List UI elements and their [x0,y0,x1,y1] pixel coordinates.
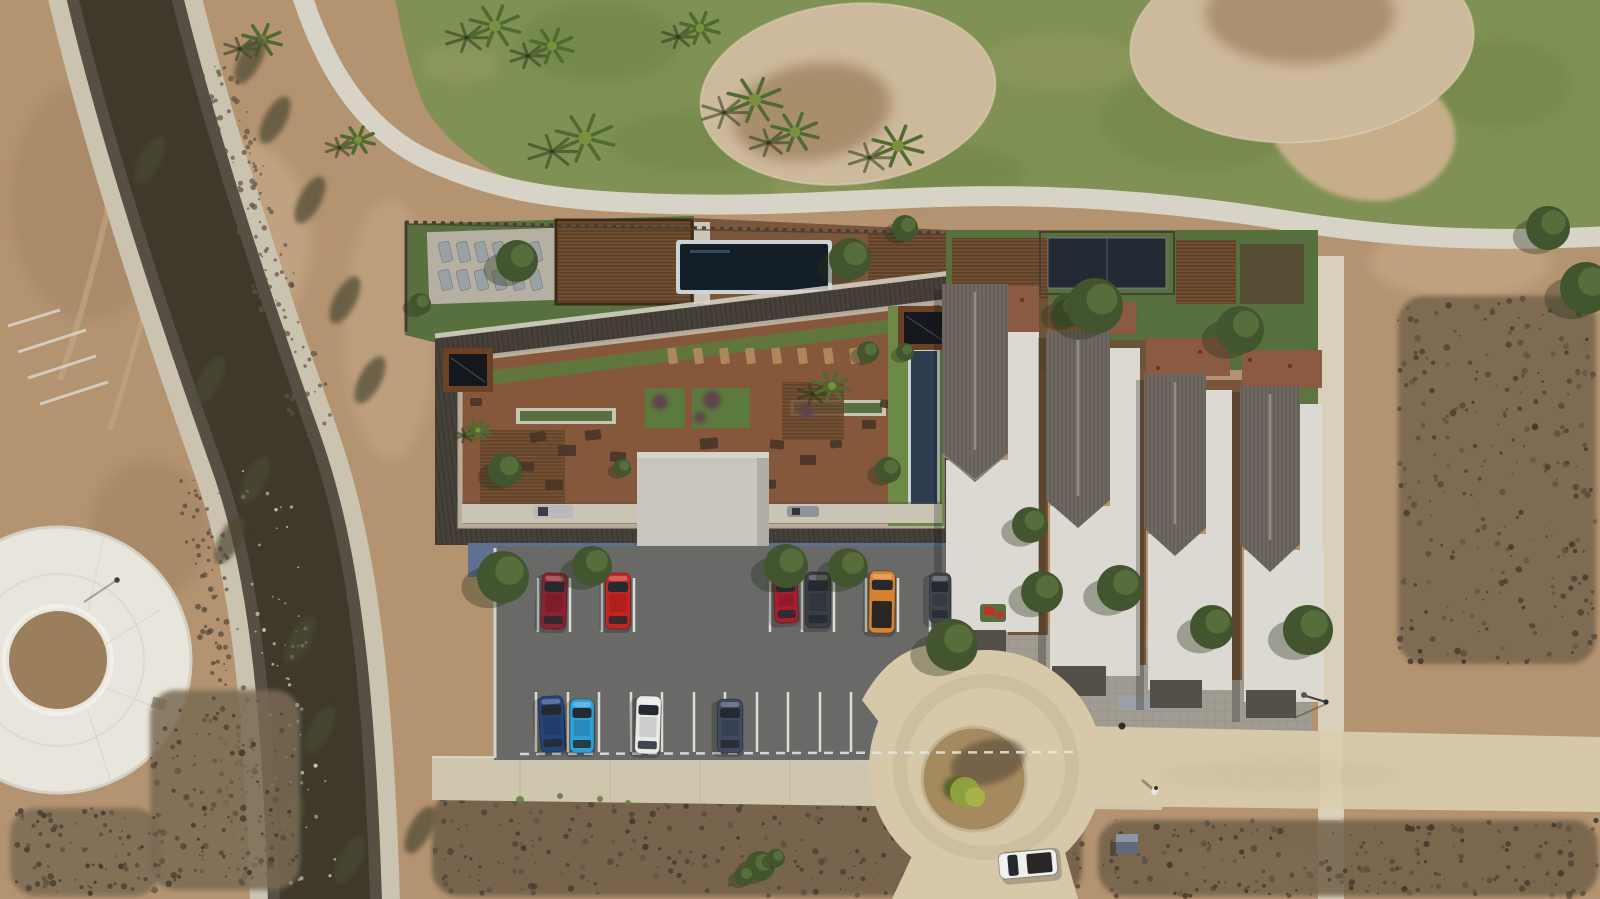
car-hood-shine [639,699,658,705]
scrub-dot [1415,357,1417,359]
scrub-dot [1542,314,1544,316]
scrub-dot [103,823,108,828]
tree-highlight [586,550,608,572]
scrub-dot [703,863,709,869]
bank-scrub-dot [303,420,307,424]
scrub-dot [1535,853,1541,859]
scrub-dot [1073,853,1075,855]
bank-scrub-dot [249,152,251,154]
scrub-dot [498,823,501,826]
scrub-dot [82,847,87,852]
scrub-dot [118,863,124,869]
scrub-dot [1510,555,1512,557]
scrub-dot [20,814,24,818]
scrub-dot [1444,492,1446,494]
plaza-lamp-post [114,577,120,583]
scrub-dot [1326,866,1332,872]
scrub-dot [1583,443,1587,447]
scrub-dot [1262,884,1266,888]
scrub-dot [719,835,721,837]
scrub-dot [1403,510,1410,517]
scrub-dot [1458,854,1464,860]
scrub-dot [1556,822,1563,829]
scrub-dot [47,812,52,817]
palm-crown [749,94,761,106]
scrub-dot [1451,826,1457,832]
scrub-dot [36,820,39,823]
scrub-dot [735,820,737,822]
tree-highlight [1113,570,1138,595]
bank-scrub-dot [259,173,262,176]
scrub-dot [193,788,196,791]
bank-scrub-dot [237,228,242,233]
scrub-dot [1410,619,1413,622]
car-rear-glass [777,610,795,619]
scrub-dot [469,876,471,878]
scrub-dot [1568,860,1575,867]
scrub-dot [1578,422,1584,428]
scrub-dot [1133,880,1138,885]
scrub-dot [568,885,575,892]
bank-scrub-dot [275,300,277,302]
green-sprig [557,793,563,799]
scrub-dot [101,811,106,816]
scrub-dot [1471,401,1474,404]
scrub-dot [1403,886,1407,890]
scrub-dot [224,724,230,730]
bank-scrub-dot [252,289,258,295]
scrub-dot [1476,528,1480,532]
scrub-dot [1499,452,1502,455]
car-windshield [541,705,561,716]
scrub-dot [151,890,153,892]
scrub-dot [1400,627,1403,630]
solar-panel-west [443,348,493,392]
scrub-dot [1501,571,1504,574]
scrub-dot [1117,876,1120,879]
scrub-dot [269,845,274,850]
scrub-dot [1537,372,1539,374]
water-sparkle [314,815,318,819]
road-wear [1160,759,1400,791]
bank-scrub-dot [192,515,196,519]
scrub-dot [36,861,42,867]
car-roof [722,720,739,736]
scrub-dot [851,876,854,879]
scrub-dot [69,842,72,845]
townhouse-4 [1240,350,1324,718]
scrub-dot [15,880,18,883]
scrub-dot [171,872,178,879]
scrub-dot [857,816,859,818]
bank-scrub-dot [259,221,261,223]
scrub-dot [1153,824,1159,830]
scrub-dot [855,893,860,898]
scrub-dot [1506,408,1508,410]
bank-scrub-dot [222,67,225,70]
tree-highlight [773,851,783,861]
scrub-dot [1459,859,1463,863]
scrub-dot [1399,483,1404,488]
scrub-dot [1460,838,1464,842]
scrub-dot [1464,469,1468,473]
scrub-dot [1445,415,1449,419]
bank-scrub-dot [243,135,248,140]
scrub-dot [1590,371,1596,377]
scrub-dot [736,806,742,812]
scrub-dot [199,854,201,856]
scrub-dot [1283,826,1285,828]
scrub-dot [227,816,230,819]
scrub-dot [1418,649,1423,654]
bank-scrub-dot [253,165,257,169]
scrub-dot [1513,376,1518,381]
scrub-dot [1415,436,1420,441]
scrub-dot [478,865,481,868]
terrace-furniture-dot [1156,366,1160,370]
car-hood-shine [541,699,560,705]
bank-scrub-dot [235,80,239,84]
scrub-dot [154,762,157,765]
scrub-dot [154,780,160,786]
car-rear-glass [932,610,948,618]
aerial-render-canvas [0,0,1600,899]
scrub-dot [1405,825,1412,832]
scrub-dot [124,817,126,819]
tree-highlight [1205,609,1229,633]
scrub-dot [1250,819,1255,824]
scrub-dot [793,859,797,863]
bank-scrub-dot [221,147,225,151]
scrub-dot [1411,501,1418,508]
playground-item [980,604,1006,622]
scrub-dot [629,818,636,825]
scrub-dot [840,888,842,890]
car-hood-shine [872,574,892,579]
scrub-dot [676,873,681,878]
bank-scrub-dot [241,211,244,214]
scrub-dot [267,860,272,865]
bank-scrub-dot [199,82,203,86]
scrub-dot [137,876,140,879]
bank-scrub-dot [268,285,272,289]
scrub-dot [1582,550,1585,553]
scrub-dot [203,825,206,828]
scrub-dot [1584,447,1588,451]
scrub-dot [219,850,224,855]
scrub-dot [1251,845,1258,852]
scrub-dot [79,885,83,889]
car-roof [610,594,627,612]
scrub-dot [563,834,568,839]
scrub-dot [1571,576,1577,582]
scrub-dot [60,847,65,852]
scrub-dot [559,871,563,875]
scrub-dot [1444,344,1451,351]
scrub-dot [211,808,214,811]
scrub-dot [1523,445,1525,447]
scrub-dot [812,848,818,854]
car [923,573,952,627]
bank-scrub-dot [188,492,191,495]
scrub-dot [582,838,588,844]
scrub-dot [1523,557,1529,563]
scrub-dot [629,812,634,817]
bank-scrub-dot [205,111,208,114]
scrub-dot [1533,631,1537,635]
scrub-dot [1408,316,1414,322]
scrub-dot [644,836,648,840]
tree-highlight [1087,284,1118,315]
bank-scrub-dot [225,555,230,560]
scrub-dot [1524,426,1530,432]
scrub-dot [1409,870,1413,874]
scrub-dot [58,833,63,838]
bank-scrub-dot [258,295,262,299]
scrub-dot [1482,621,1487,626]
scrub-dot [1460,539,1466,545]
water-sparkle [272,596,274,598]
bank-scrub-dot [251,284,255,288]
palm-crown [828,382,836,390]
scrub-dot [772,815,777,820]
scrub-dot [26,843,31,848]
scrub-dot [1255,828,1259,832]
scrub-dot [1505,841,1510,846]
scrub-dot [1351,865,1353,867]
water-sparkle [298,615,300,617]
grass-dry-patch [980,34,1140,90]
scrub-dot [1424,610,1428,614]
bank-scrub-dot [248,140,253,145]
bank-scrub-dot [207,546,210,549]
scrub-dot [1545,535,1548,538]
scrub-dot [1434,872,1438,876]
scrub-dot [137,847,141,851]
scrub-dot [884,891,888,895]
scrub-dot [1397,319,1399,321]
scrub-dot [667,826,673,832]
bank-scrub-dot [180,511,184,515]
scrub-dot [1575,370,1580,375]
scrub-dot [1453,329,1456,332]
deck-furniture-item [558,445,576,456]
scrub-dot [1525,353,1531,359]
scrub-dot [274,750,277,753]
scrub-dot [1406,307,1409,310]
bank-scrub-dot [194,493,198,497]
scrub-dot [1501,845,1505,849]
water-sparkle [284,602,286,604]
bank-scrub-dot [193,479,195,481]
scrub-dot [519,841,522,844]
scrub-dot [1440,544,1442,546]
scrub-dot [465,823,468,826]
scrub-dot [245,851,250,856]
scrub-dot [497,861,500,864]
aerial-site-photo [0,0,1600,899]
bank-scrub-dot [218,631,224,637]
scrub-dot [240,815,247,822]
purple-shrub [799,405,813,419]
bank-scrub-dot [286,408,291,413]
scrub-dot [639,855,645,861]
scrub-dot [1414,583,1417,586]
scrub-dot [1240,828,1244,832]
scrub-dot [1461,659,1466,664]
grass-mottle [520,2,680,82]
scrub-dot [1389,859,1394,864]
scrub-dot [568,828,572,832]
scrub-dot [1544,841,1547,844]
water-sparkle [266,492,270,496]
scrub-dot [172,789,176,793]
scrub-dot [534,862,536,864]
bank-scrub-dot [201,607,207,613]
scrub-dot [1547,652,1552,657]
lamp-pole [1323,699,1328,704]
scrub-dot [530,890,535,895]
scrub-dot [238,740,240,742]
scrub-dot [1433,453,1436,456]
scrub-dot [1481,524,1487,530]
scrub-dot [1414,319,1419,324]
bank-scrub-dot [307,358,311,362]
scrub-dot [1585,338,1588,341]
scrub-dot [1519,296,1525,302]
scrub-dot [1425,551,1431,557]
scrub-dot [131,887,134,890]
scrub-dot [532,844,536,848]
scrub-dot [1270,835,1272,837]
scrub-dot [239,749,246,756]
scrub-dot [275,788,279,792]
scrub-dot [1343,868,1348,873]
scrub-dot [1380,841,1383,844]
scrub-dot [736,836,740,840]
scrub-dot [172,757,175,760]
scrub-dot [1521,368,1527,374]
scrub-dot [208,733,210,735]
bank-scrub-dot [291,338,294,341]
scrub-dot [631,848,633,850]
scrub-dot [1559,336,1564,341]
scrub-dot [1556,461,1559,464]
scrub-dot [1442,615,1447,620]
flat-roof-strip [1110,348,1140,510]
scrub-dot [1262,870,1266,874]
scrub-dot [1557,555,1560,558]
bank-scrub-dot [247,207,249,209]
scrub-dot [668,868,674,874]
bank-scrub-dot [220,167,222,169]
scrub-dot [1589,488,1593,492]
scrub-dot [1473,444,1477,448]
scrub-dot [861,858,866,863]
scrub-dot [21,818,24,821]
bank-scrub-dot [198,496,202,500]
play-red-piece [983,606,995,615]
scrub-dot [1571,889,1576,894]
bank-scrub-dot [305,391,310,396]
scrub-dot [538,810,543,815]
scrub-dot [1326,860,1328,862]
scrub-dot [1271,827,1277,833]
bank-scrub-dot [213,116,218,121]
scrub-dot [576,805,581,810]
purple-shrub [703,391,721,409]
bank-scrub-dot [250,184,256,190]
scrub-dot [1233,859,1237,863]
scrub-dot [816,806,819,809]
water-sparkle [305,826,307,828]
scrub-dot [1076,884,1081,889]
scrub-dot [1591,377,1593,379]
scrub-dot [1506,865,1511,870]
tree-highlight [741,868,752,879]
water-sparkle [271,663,274,666]
scrub-dot [160,829,167,836]
scrub-dot [1474,304,1480,310]
scrub-dot [1494,541,1500,547]
scrub-dot [85,863,90,868]
scrub-dot [699,825,704,830]
water-sparkle [262,628,266,632]
scrub-dot [194,755,196,757]
scrub-dot [591,835,593,837]
scrub-dot [193,763,196,766]
scrub-dot [840,869,846,875]
scrub-dot [1533,880,1535,882]
scrub-dot [1517,340,1523,346]
car [862,571,896,638]
bank-scrub-dot [228,76,234,82]
water-sparkle [258,544,261,547]
scrub-dot [448,888,454,894]
scrub-dot [741,855,744,858]
scrub-dot [153,816,156,819]
entry-canopy-tiles [1150,680,1202,708]
roof-terrace [1008,286,1039,332]
path-crossing [1320,730,1342,820]
scrub-dot [1516,516,1519,519]
scrub-dot [1562,430,1565,433]
bank-scrub-dot [197,634,203,640]
bank-scrub-dot [255,247,257,249]
scrub-dot [1384,858,1387,861]
scrub-dot [1533,399,1538,404]
scrub-dot [1430,884,1434,888]
scrub-dot [269,814,271,816]
scrub-dot [1393,881,1397,885]
scrub-dot [1490,310,1495,315]
scrub-dot [689,851,692,854]
scrub-dot [457,828,459,830]
deck-furniture-item [700,437,719,450]
scrub-dot [1474,589,1480,595]
tree-highlight [619,461,629,471]
scrub-dot [251,776,253,778]
bank-scrub-dot [213,661,216,664]
scrub-dot [1524,323,1530,329]
scrub-dot [225,876,227,878]
bank-scrub-dot [239,120,241,122]
scrub-dot [261,833,264,836]
service-cart [787,506,819,517]
bank-scrub-dot [283,315,287,319]
scrub-dot [1383,881,1387,885]
water-sparkle [324,780,326,782]
